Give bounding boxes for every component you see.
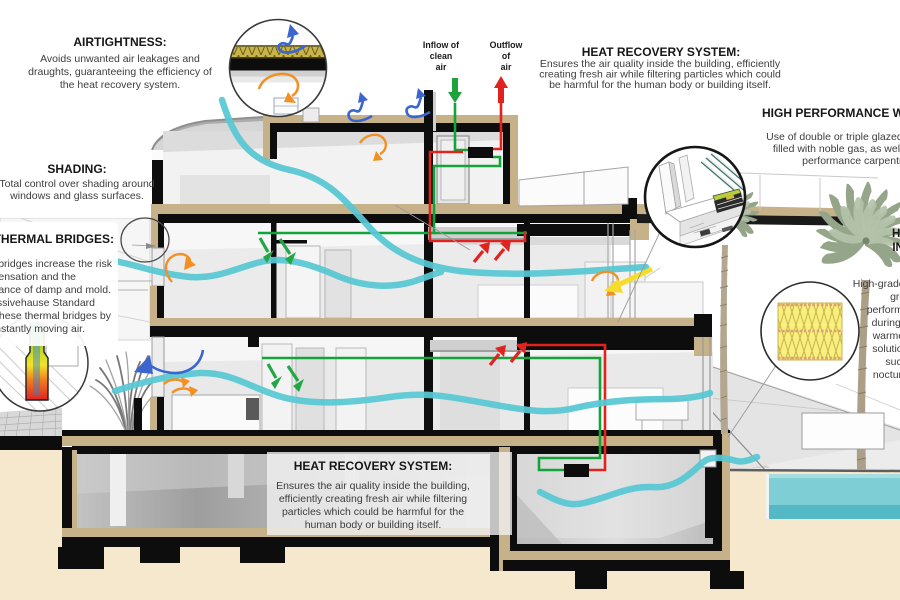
svg-text:performance carpentry.: performance carpentry. [802,155,900,167]
svg-text:such as natural: such as natural [885,356,900,368]
svg-text:particles which could be harmf: particles which could be harmful for the [282,506,464,518]
svg-text:HEAT RECOVERY SYSTEM:: HEAT RECOVERY SYSTEM: [582,45,740,59]
svg-text:Use of double or triple glazed: Use of double or triple glazed windows [766,131,900,143]
svg-text:avoids these thermal bridges b: avoids these thermal bridges by [0,310,112,322]
svg-text:warmer months, with: warmer months, with [872,330,900,342]
svg-text:HIGH PERFORMANCE WINDOWS:: HIGH PERFORMANCE WINDOWS: [762,106,900,120]
svg-text:constantly moving air.: constantly moving air. [0,323,85,335]
svg-text:Thermal bridges increase the r: Thermal bridges increase the risk [0,258,113,270]
svg-text:clean: clean [430,51,453,61]
svg-text:the heat recovery system.: the heat recovery system. [60,79,180,91]
svg-text:during the colder and: during the colder and [872,317,900,329]
svg-text:of condensation and the: of condensation and the [0,271,76,283]
svg-text:INSULATION:: INSULATION: [892,242,900,254]
svg-text:human body or building itself.: human body or building itself. [305,519,442,531]
svg-text:draughts, guaranteeing the eff: draughts, guaranteeing the efficiency of [28,66,212,78]
svg-text:Total control over shading aro: Total control over shading around [0,178,155,190]
svg-text:of: of [502,51,510,61]
svg-text:great thermal: great thermal [890,291,900,303]
svg-text:The Passivehause Standard: The Passivehause Standard [0,297,95,309]
svg-text:filled with noble gas, as well: filled with noble gas, as well as high [773,143,900,155]
svg-text:windows and glass surfaces.: windows and glass surfaces. [9,190,144,202]
svg-text:air: air [501,62,512,72]
svg-text:HEAT RECOVERY SYSTEM:: HEAT RECOVERY SYSTEM: [294,459,452,473]
svg-text:Ensures the air quality inside: Ensures the air quality inside the build… [276,480,470,492]
svg-text:AVOIDS THERMAL BRIDGES:: AVOIDS THERMAL BRIDGES: [0,232,114,246]
svg-text:Outflow: Outflow [490,40,523,50]
svg-text:efficiently creating fresh air: efficiently creating fresh air while fil… [279,493,467,505]
svg-text:AIRTIGHTNESS:: AIRTIGHTNESS: [73,35,166,49]
svg-text:HIGH-GRADE: HIGH-GRADE [892,228,900,240]
svg-text:nocturnal ventilation.: nocturnal ventilation. [873,369,900,381]
svg-text:performance during the: performance during the [867,304,900,316]
svg-text:High-grade insulation creates: High-grade insulation creates [853,278,900,290]
svg-text:appearance of damp and mold.: appearance of damp and mold. [0,284,111,296]
svg-text:air: air [436,62,447,72]
svg-text:solutions for summer: solutions for summer [872,343,900,355]
svg-text:Avoids unwanted air leakages a: Avoids unwanted air leakages and [40,53,200,65]
svg-text:SHADING:: SHADING: [47,162,106,176]
svg-text:be harmful for the human body: be harmful for the human body or buildin… [549,79,771,91]
svg-text:Inflow of: Inflow of [423,40,459,50]
